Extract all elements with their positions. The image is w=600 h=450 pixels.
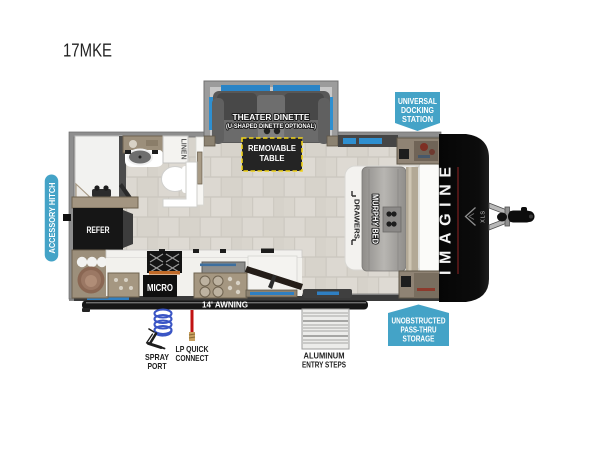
svg-text:MICRO: MICRO	[147, 282, 173, 294]
svg-text:STATION: STATION	[402, 115, 433, 124]
svg-text:UNIVERSAL: UNIVERSAL	[398, 97, 437, 106]
svg-text:ACCESSORY HITCH: ACCESSORY HITCH	[47, 183, 57, 254]
svg-text:(U-SHAPED DINETTE OPTIONAL): (U-SHAPED DINETTE OPTIONAL)	[226, 123, 316, 130]
svg-text:DRAWERS: DRAWERS	[353, 199, 362, 239]
svg-text:UNOBSTRUCTED: UNOBSTRUCTED	[392, 317, 446, 326]
svg-text:17MKE: 17MKE	[63, 41, 112, 61]
svg-text:THEATER DINETTE: THEATER DINETTE	[233, 112, 310, 122]
svg-text:PASS-THRU: PASS-THRU	[401, 326, 437, 335]
svg-text:DOCKING: DOCKING	[401, 106, 434, 115]
svg-text:14' AWNING: 14' AWNING	[202, 301, 248, 310]
svg-text:REFER: REFER	[87, 225, 110, 236]
svg-text:ENTRY STEPS: ENTRY STEPS	[302, 360, 346, 370]
svg-text:STORAGE: STORAGE	[403, 335, 435, 344]
svg-text:LINEN: LINEN	[180, 139, 187, 160]
svg-text:CONNECT: CONNECT	[176, 353, 210, 363]
svg-text:XLS: XLS	[481, 210, 487, 223]
svg-text:PORT: PORT	[148, 361, 168, 371]
svg-text:MURPHY BED: MURPHY BED	[371, 194, 381, 244]
svg-text:TABLE: TABLE	[260, 153, 285, 163]
svg-text:REMOVABLE: REMOVABLE	[248, 143, 296, 153]
